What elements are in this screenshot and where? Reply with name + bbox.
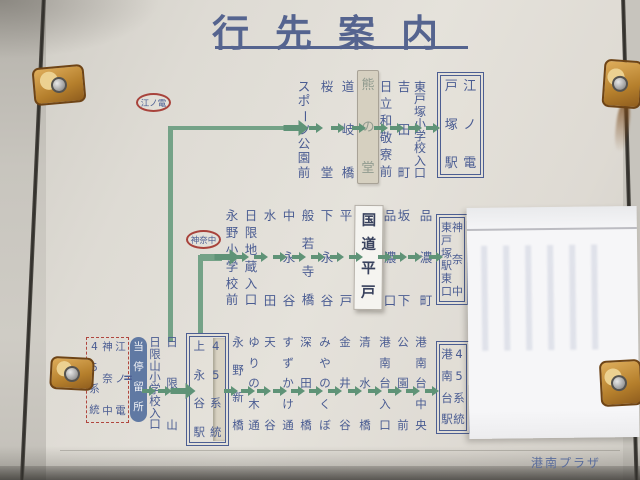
stop-label: 日限山小学校入口: [149, 337, 161, 431]
current-stop-label: 当停留所: [133, 342, 144, 413]
sign-maker-label: 港南プラザ: [531, 454, 601, 471]
route-arrow-icon: [408, 123, 422, 133]
stop-label: 金井谷: [339, 337, 351, 431]
bolt-icon: [64, 365, 81, 382]
route-arrow-icon: [291, 386, 305, 396]
route-arrow-icon: [273, 252, 287, 262]
stop-label: みやのくぼ: [319, 337, 331, 431]
photo-shadow-top-left: [0, 0, 190, 70]
paper-showthrough: [481, 244, 612, 351]
route-connector-line: [168, 126, 173, 342]
route-arrow-icon: [374, 123, 388, 133]
mounting-bracket-bottom-right: [599, 359, 640, 407]
route-arrow-icon: [311, 252, 325, 262]
stop-label: 港南台入口: [379, 337, 391, 431]
destination-box-operator: 江ノ電: [463, 80, 476, 170]
destination-box-station: 港南台駅: [441, 349, 453, 426]
stop-label: 清水橋: [359, 337, 371, 431]
route-arrow-icon: [393, 252, 407, 262]
paper-fold-line: [467, 227, 637, 231]
route-arrow-icon: [224, 386, 238, 396]
stop-label: ゆりの木通: [248, 337, 260, 431]
mounting-bracket-top-left: [31, 64, 86, 106]
route-arrow-icon: [426, 123, 440, 133]
destination-box: 港南台駅45系統: [436, 341, 470, 434]
destination-box: 戸塚駅江ノ電: [437, 72, 484, 178]
mounting-bracket-top-right: [601, 59, 640, 110]
route-arrow-icon: [292, 252, 306, 262]
destination-box-operator: 45系統: [453, 349, 465, 426]
route-arrow-icon: [352, 123, 366, 133]
route-arrow-icon: [388, 386, 402, 396]
route-arrow-icon: [406, 386, 420, 396]
stop-label: 天谷: [264, 337, 276, 431]
bolt-icon: [611, 375, 628, 392]
equals-sign: =: [123, 371, 133, 385]
route-arrow-icon: [378, 252, 392, 262]
route-arrow-icon: [142, 386, 156, 396]
route-arrow-icon: [328, 386, 342, 396]
route-arrow-icon: [429, 252, 443, 262]
stop-label: 港南台中央: [415, 337, 427, 431]
sign-photo: 行先案内 江ノ電スポーツ公園前桜堂道岐橋熊の堂日立和敬寮前吉田町東戸塚小学校入口…: [0, 0, 640, 480]
route-arrow-icon: [408, 252, 422, 262]
operator-badge: 江ノ電: [136, 93, 171, 112]
stop-label: 深田橋: [300, 337, 312, 431]
title-underline: [215, 46, 468, 49]
stop-label: すずかけ通: [282, 337, 294, 431]
destination-box-station: 戸塚駅: [445, 80, 458, 170]
route-arrow-icon: [241, 386, 255, 396]
route-arrow-icon: [368, 386, 382, 396]
stop-label: 永野新橋: [232, 337, 244, 431]
route-line: [170, 126, 291, 131]
bolt-icon: [611, 75, 628, 92]
route-arrow-icon: [348, 386, 362, 396]
route-arrow-icon: [273, 386, 287, 396]
route-connector-line: [198, 255, 203, 334]
legend-column: 神奈中: [102, 342, 113, 416]
route-arrow-icon: [390, 123, 404, 133]
destination-box-operator: 神奈中: [452, 222, 463, 297]
route-arrow-icon: [170, 383, 195, 399]
route-arrow-icon: [257, 386, 271, 396]
operator-badge: 神奈中: [186, 230, 221, 249]
route-arrow-icon: [235, 252, 249, 262]
bolt-icon: [50, 76, 67, 93]
route-arrow-icon: [330, 252, 344, 262]
route-arrow-icon: [254, 252, 268, 262]
mounting-bracket-bottom-left: [49, 356, 95, 391]
hub-station-box-operator: 45系統: [210, 341, 222, 438]
route-arrow-icon: [331, 123, 345, 133]
route-arrow-icon: [425, 386, 439, 396]
route-arrow-icon: [309, 386, 323, 396]
stop-label: 公園前: [397, 337, 409, 431]
route-arrow-icon: [284, 120, 309, 136]
panel-bottom-edge: [60, 450, 620, 451]
route-arrow-icon: [309, 123, 323, 133]
route-arrow-icon: [349, 252, 363, 262]
